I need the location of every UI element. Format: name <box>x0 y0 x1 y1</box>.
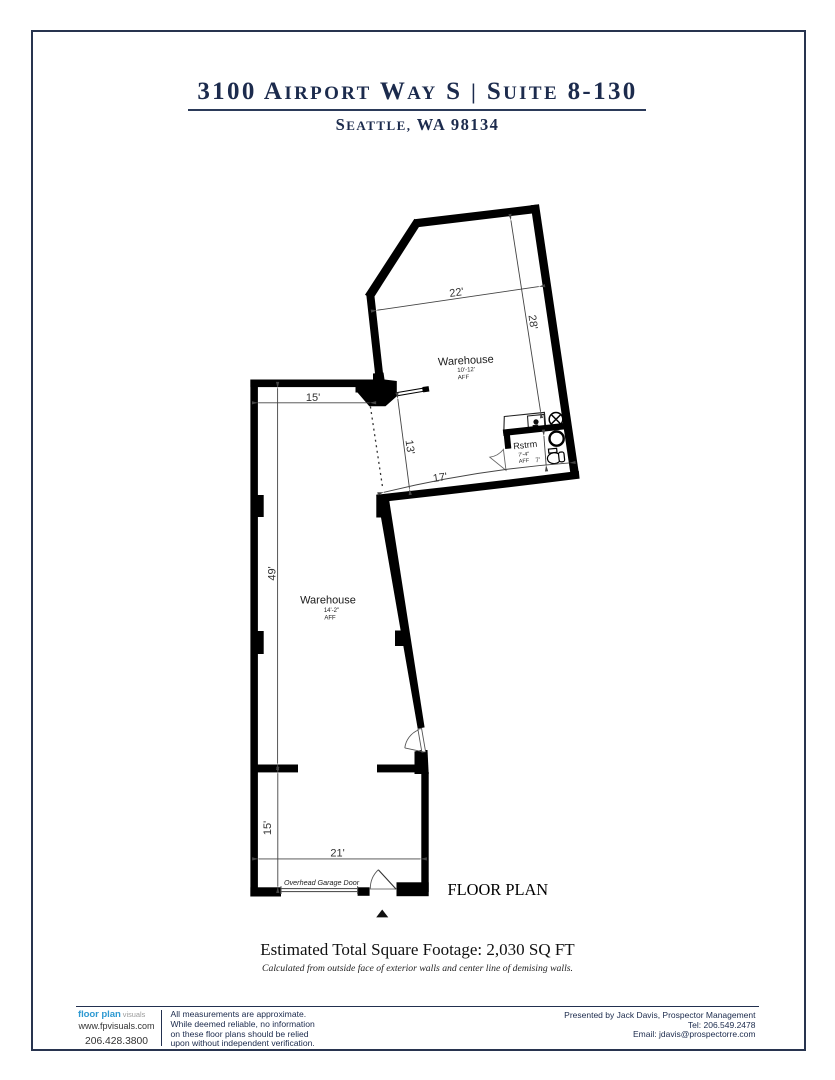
svg-text:AFF: AFF <box>324 616 336 622</box>
svg-text:15': 15' <box>306 392 320 404</box>
svg-text:49': 49' <box>267 566 279 580</box>
svg-text:AFF: AFF <box>458 375 470 382</box>
svg-text:Warehouse: Warehouse <box>300 595 356 607</box>
svg-text:28': 28' <box>526 314 540 330</box>
svg-text:15': 15' <box>262 821 274 835</box>
svg-text:Warehouse: Warehouse <box>438 354 494 369</box>
svg-text:21': 21' <box>330 848 344 860</box>
svg-text:10'-12': 10'-12' <box>457 367 475 374</box>
svg-text:Rstrm: Rstrm <box>513 439 538 451</box>
svg-text:17': 17' <box>432 471 448 485</box>
svg-text:AFF: AFF <box>519 458 531 465</box>
svg-text:7': 7' <box>535 457 541 464</box>
svg-text:13': 13' <box>403 439 417 455</box>
svg-text:14'-2": 14'-2" <box>324 608 339 614</box>
svg-text:22': 22' <box>449 286 465 300</box>
svg-text:Overhead Garage Door: Overhead Garage Door <box>284 878 360 887</box>
